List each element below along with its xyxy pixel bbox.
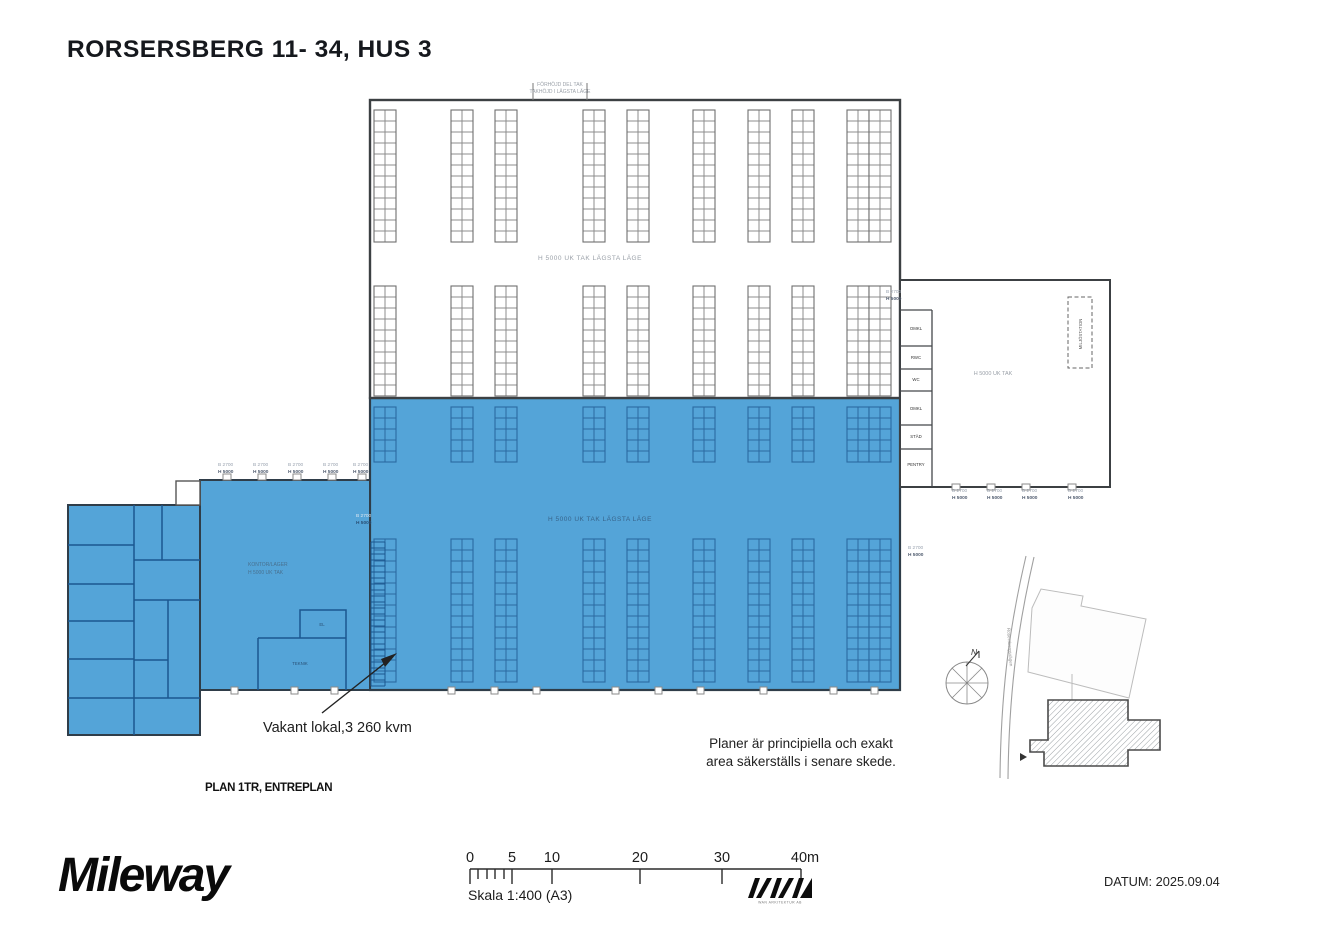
dim-b: B 2700 — [323, 462, 339, 468]
site-entry-arrow-icon — [1020, 753, 1027, 761]
rack-row — [869, 286, 891, 396]
room-label-teknik: TEKNIK — [292, 661, 308, 666]
dim-b: B 2700 — [218, 462, 234, 468]
dim-h: H 5000 — [952, 495, 968, 501]
dim-b: B 2700 — [987, 488, 1003, 494]
scale-bar: 0 5 10 20 30 40m Skala 1:400 (A3) — [466, 850, 819, 903]
rack-row — [847, 407, 869, 462]
rack-row — [451, 539, 473, 682]
rack-row — [495, 407, 517, 462]
room-label-el: EL — [319, 622, 325, 627]
scale-tick-10: 10 — [544, 850, 560, 866]
rack-row — [374, 286, 396, 396]
scale-tick-0: 0 — [466, 850, 474, 866]
drawing-sheet: FÖRHÖJD DEL TAK TAKHÖJD I LÄGSTA LÄGE H … — [0, 0, 1330, 945]
dim-b: B 2700 — [952, 488, 968, 494]
rack-row — [451, 407, 473, 462]
neighbor-building-outline — [1028, 589, 1146, 698]
rack-row — [693, 110, 715, 242]
rack-row — [792, 407, 814, 462]
page-title: RORSERSBERG 11- 34, HUS 3 — [67, 36, 432, 63]
recycling-label: MILJÖSTATION — [1078, 319, 1083, 350]
rack-row — [627, 539, 649, 682]
dim-b: B 2700 — [1022, 488, 1038, 494]
dim-b: B 2700 — [886, 289, 902, 295]
rack-row — [374, 110, 396, 242]
midsection-label-line2: H 5000 UK TAK — [248, 570, 284, 576]
hall-upper-height-label: H 5000 UK TAK LÄGSTA LÄGE — [538, 254, 642, 262]
dim-h: H 5000 — [1022, 495, 1038, 501]
floor-plan-canvas: FÖRHÖJD DEL TAK TAKHÖJD I LÄGSTA LÄGE H … — [0, 0, 1330, 945]
dim-h: H 5000 — [288, 469, 304, 475]
rack-row — [693, 407, 715, 462]
rack-row — [792, 539, 814, 682]
vacant-midsection — [200, 480, 370, 690]
rack-row — [869, 407, 891, 462]
wan-architect-logo-icon: WAN ARKITEKTUR AB — [748, 878, 812, 905]
dim-h: H 5000 — [353, 469, 369, 475]
north-label: N — [971, 647, 978, 657]
dim-h: H 5000 — [886, 296, 902, 302]
architect-caption: WAN ARKITEKTUR AB — [758, 901, 802, 905]
rack-row — [748, 407, 770, 462]
pallet-racking — [374, 110, 891, 682]
rack-row — [847, 539, 869, 682]
rack-row — [583, 110, 605, 242]
scale-ratio-label: Skala 1:400 (A3) — [468, 887, 572, 903]
dim-h: H 5000 — [356, 520, 372, 526]
dim-h: H 5000 — [253, 469, 269, 475]
north-compass-icon: N — [946, 647, 988, 704]
rack-row — [495, 286, 517, 396]
plan-level-label: PLAN 1TR, ENTREPLAN — [205, 782, 332, 794]
rack-row — [627, 286, 649, 396]
rack-row — [847, 286, 869, 396]
dim-b: B 2700 — [353, 462, 369, 468]
room-label-wc: WC — [912, 377, 919, 382]
rack-row — [374, 407, 396, 462]
room-label-omkl: OMKL — [910, 406, 923, 411]
rack-row — [869, 110, 891, 242]
rack-row — [451, 286, 473, 396]
rack-row — [748, 286, 770, 396]
vacant-annotation: Vakant lokal,3 260 kvm — [263, 720, 412, 736]
hall-lower-height-label: H 5000 UK TAK LÄGSTA LÄGE — [548, 515, 652, 523]
room-label-pentry: PENTRY — [907, 462, 924, 467]
dim-h: H 5000 — [987, 495, 1003, 501]
date-label: DATUM: 2025.09.04 — [1104, 874, 1220, 889]
rack-row — [583, 286, 605, 396]
dim-h: H 5000 — [1068, 495, 1084, 501]
rack-row — [495, 110, 517, 242]
dim-b: B 2700 — [253, 462, 269, 468]
site-plan: Rosersbergsvägen N — [946, 556, 1160, 779]
dim-b: B 2700 — [908, 545, 924, 551]
rack-row — [495, 539, 517, 682]
subject-building-hatched — [1030, 700, 1160, 766]
rack-row — [693, 539, 715, 682]
disclaimer-line1: Planer är principiella och exakt — [709, 736, 893, 751]
scale-tick-5: 5 — [508, 850, 516, 866]
room-label-stad: STÄD — [910, 434, 921, 439]
rack-row — [792, 286, 814, 396]
rack-row — [627, 110, 649, 242]
rack-row — [869, 539, 891, 682]
midsection-label-line1: KONTOR/LAGER — [248, 562, 288, 568]
scale-tick-20: 20 — [632, 850, 648, 866]
room-label-rwc: RWC — [911, 355, 921, 360]
disclaimer-line2: area säkerställs i senare skede. — [706, 754, 896, 769]
rack-row — [451, 110, 473, 242]
roof-note-line2: TAKHÖJD I LÄGSTA LÄGE — [530, 88, 592, 95]
dim-b: B 2700 — [288, 462, 304, 468]
road-line — [1000, 556, 1026, 778]
dim-h: H 5000 — [323, 469, 339, 475]
stair-notch — [176, 481, 200, 505]
room-label-omkl: OMKL — [910, 326, 923, 331]
rack-row — [748, 539, 770, 682]
rack-row — [627, 407, 649, 462]
mileway-logo: Mileway — [58, 849, 232, 902]
dim-b: B 2700 — [1068, 488, 1084, 494]
dim-h: H 5000 — [908, 552, 924, 558]
rack-row — [693, 286, 715, 396]
annex-height-label: H 5000 UK TAK — [974, 371, 1013, 377]
roof-note-line1: FÖRHÖJD DEL TAK — [537, 81, 583, 88]
scale-tick-40m: 40m — [791, 850, 819, 866]
rack-row — [748, 110, 770, 242]
dim-b: B 2700 — [356, 513, 372, 519]
rack-row — [847, 110, 869, 242]
rack-row — [583, 407, 605, 462]
rack-row — [792, 110, 814, 242]
scale-tick-30: 30 — [714, 850, 730, 866]
dim-h: H 5000 — [218, 469, 234, 475]
rack-row — [583, 539, 605, 682]
